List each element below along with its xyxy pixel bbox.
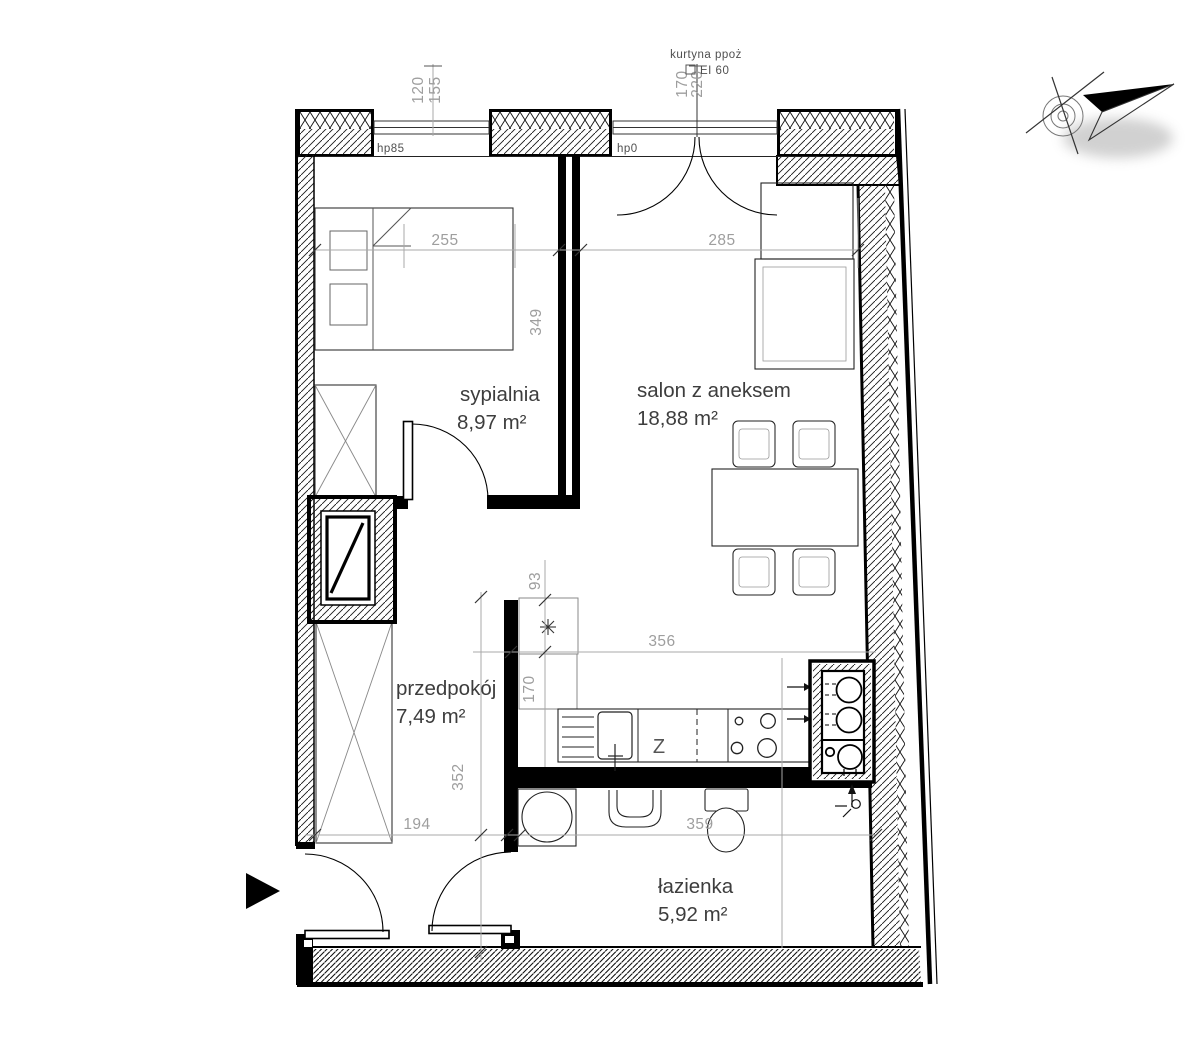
dim-hall-width: 194: [403, 816, 430, 833]
entrance-marker-icon: [246, 873, 280, 909]
fire-rating-label: EI 60: [700, 65, 729, 77]
fire-curtain-label: kurtyna ppoż: [670, 49, 742, 61]
room-area-przedpokoj: 7,49 m²: [396, 705, 466, 728]
floor-plan-drawing: sypialnia 8,97 m² salon z aneksem 18,88 …: [0, 0, 1200, 1060]
washing-machine: [518, 789, 576, 846]
dining-table: [712, 469, 858, 546]
dim-kitchen-depth: 170: [521, 675, 538, 702]
room-label-salon: salon z aneksem: [637, 379, 791, 402]
dim-kitchen-offset: 93: [527, 572, 544, 590]
bed: [315, 208, 513, 350]
hob: [731, 714, 776, 758]
interior-partitions: [396, 156, 872, 852]
dim-hall-depth: 352: [450, 763, 467, 790]
riser-shaft: [309, 497, 395, 622]
dim-bedroom-depth: 349: [528, 308, 545, 335]
floor-plan-sheet: sypialnia 8,97 m² salon z aneksem 18,88 …: [0, 0, 1200, 1060]
sill-label-hp85: hp85: [377, 143, 405, 155]
dim-bedroom-width: 255: [431, 232, 458, 249]
chairs: [733, 421, 835, 595]
dim-window-155: 155: [427, 76, 444, 103]
fridge-asterisk-icon: [540, 619, 556, 635]
hall-elements: [309, 497, 395, 843]
exhaust-symbols-icon: [835, 784, 860, 817]
room-label-sypialnia: sypialnia: [460, 383, 540, 406]
sofa: [755, 183, 854, 369]
dim-window-120: 120: [410, 76, 427, 103]
room-area-sypialnia: 8,97 m²: [457, 411, 527, 434]
entrance-door: [305, 854, 389, 939]
washbasin: [609, 790, 661, 827]
sink-z-label: Z: [653, 736, 665, 758]
compass-shadow: [1063, 118, 1173, 158]
vent-arrows-icon: [787, 683, 811, 723]
ventilation-shaft: [810, 661, 874, 817]
bathroom-door: [429, 852, 511, 934]
tap-icon: [608, 744, 623, 771]
wardrobe-bedroom: [315, 385, 376, 497]
compass-needle-icon: [1083, 84, 1174, 112]
dim-living-width: 285: [708, 232, 735, 249]
sill-label-hp0: hp0: [617, 143, 638, 155]
pillow: [330, 284, 367, 325]
dim-kitchen-run: 356: [648, 633, 675, 650]
dim-bathroom-width: 359: [686, 816, 713, 833]
room-area-lazienka: 5,92 m²: [658, 903, 728, 926]
wardrobe-hall: [316, 622, 392, 843]
room-label-przedpokoj: przedpokój: [396, 677, 496, 700]
bedroom-furniture: [315, 208, 513, 497]
room-area-salon: 18,88 m²: [637, 407, 718, 430]
room-label-lazienka: łazienka: [658, 875, 734, 898]
kitchen-counter: [558, 709, 810, 762]
north-arrow: [1026, 72, 1174, 158]
sink-drainer: [562, 717, 594, 757]
